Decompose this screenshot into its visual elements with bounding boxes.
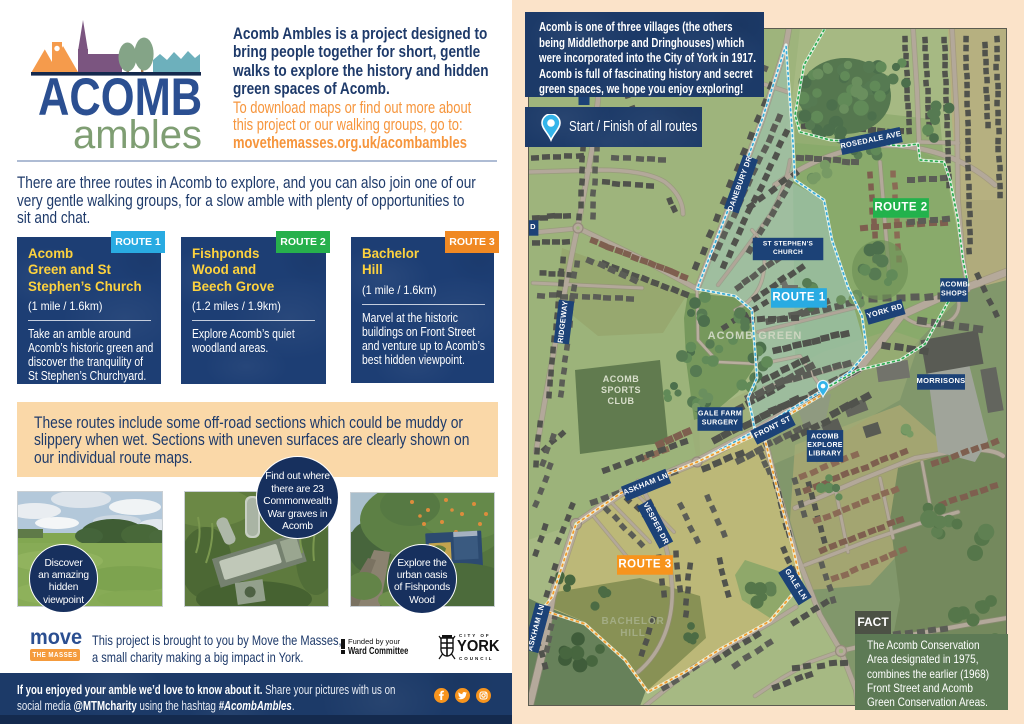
svg-text:CHURCH: CHURCH: [773, 249, 803, 256]
svg-text:ACOMB: ACOMB: [811, 433, 839, 440]
svg-text:MORRISONS: MORRISONS: [917, 376, 966, 385]
svg-text:ROUTE 2: ROUTE 2: [874, 201, 927, 213]
svg-text:ACOMB GREEN: ACOMB GREEN: [708, 330, 803, 342]
svg-text:D: D: [530, 222, 536, 231]
svg-text:ACOMB: ACOMB: [940, 282, 968, 289]
svg-text:SHOPS: SHOPS: [941, 290, 967, 297]
svg-text:LIBRARY: LIBRARY: [809, 451, 842, 458]
svg-text:EXPLORE: EXPLORE: [807, 442, 843, 449]
svg-text:ROUTE 1: ROUTE 1: [772, 291, 825, 303]
svg-text:ST STEPHEN'S: ST STEPHEN'S: [763, 241, 814, 248]
svg-text:SURGERY: SURGERY: [702, 419, 738, 426]
svg-text:GALE FARM: GALE FARM: [698, 411, 742, 418]
svg-text:ROUTE 3: ROUTE 3: [618, 558, 671, 570]
